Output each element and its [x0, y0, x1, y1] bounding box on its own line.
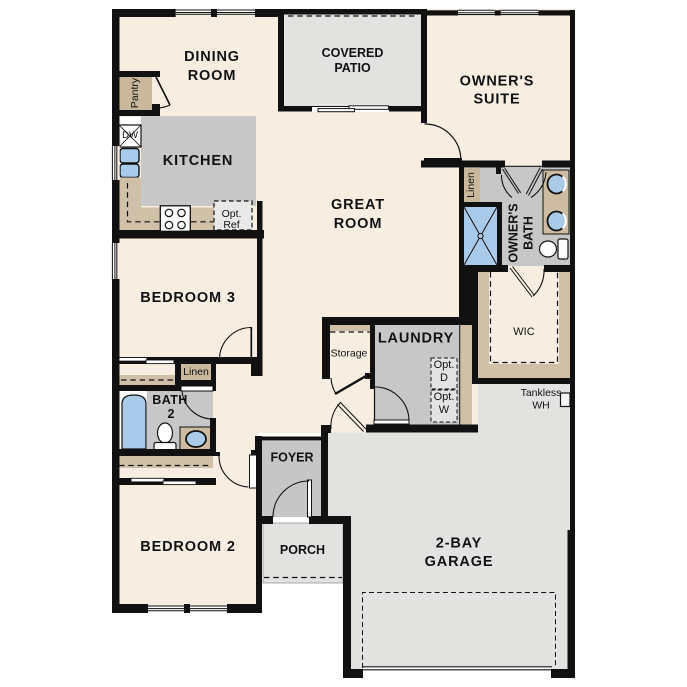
svg-text:2-BAY: 2-BAY [436, 536, 482, 552]
svg-text:Storage: Storage [331, 348, 368, 360]
svg-text:OWNER'S: OWNER'S [460, 74, 535, 90]
svg-text:Linen: Linen [183, 366, 209, 378]
svg-text:Linen: Linen [465, 172, 477, 198]
svg-text:DW: DW [122, 130, 138, 141]
svg-text:WIC: WIC [513, 326, 534, 338]
svg-text:SUITE: SUITE [474, 92, 521, 108]
svg-text:WH: WH [532, 400, 550, 412]
svg-text:BATH: BATH [152, 393, 187, 407]
svg-text:COVERED: COVERED [322, 46, 384, 60]
svg-text:D: D [440, 372, 448, 384]
svg-text:OWNER'S: OWNER'S [506, 203, 520, 262]
svg-text:GARAGE: GARAGE [425, 554, 494, 570]
svg-text:Opt.: Opt. [434, 391, 455, 403]
svg-text:BEDROOM 2: BEDROOM 2 [140, 539, 235, 555]
svg-text:FOYER: FOYER [270, 451, 313, 465]
svg-text:2: 2 [168, 407, 175, 421]
svg-text:KITCHEN: KITCHEN [163, 153, 233, 169]
svg-text:Pantry: Pantry [129, 77, 141, 108]
svg-text:Tankless: Tankless [521, 387, 562, 399]
svg-text:BATH: BATH [521, 216, 535, 250]
svg-text:Opt.: Opt. [434, 359, 455, 371]
svg-text:BEDROOM 3: BEDROOM 3 [140, 290, 235, 306]
svg-text:Ref: Ref [223, 219, 239, 231]
svg-text:PATIO: PATIO [334, 61, 371, 75]
svg-text:W: W [439, 404, 450, 416]
svg-text:GREAT: GREAT [331, 197, 385, 213]
svg-text:PORCH: PORCH [280, 543, 325, 557]
svg-text:ROOM: ROOM [334, 216, 383, 232]
svg-text:DINING: DINING [184, 49, 240, 65]
svg-text:ROOM: ROOM [188, 68, 237, 84]
svg-text:LAUNDRY: LAUNDRY [378, 331, 454, 347]
